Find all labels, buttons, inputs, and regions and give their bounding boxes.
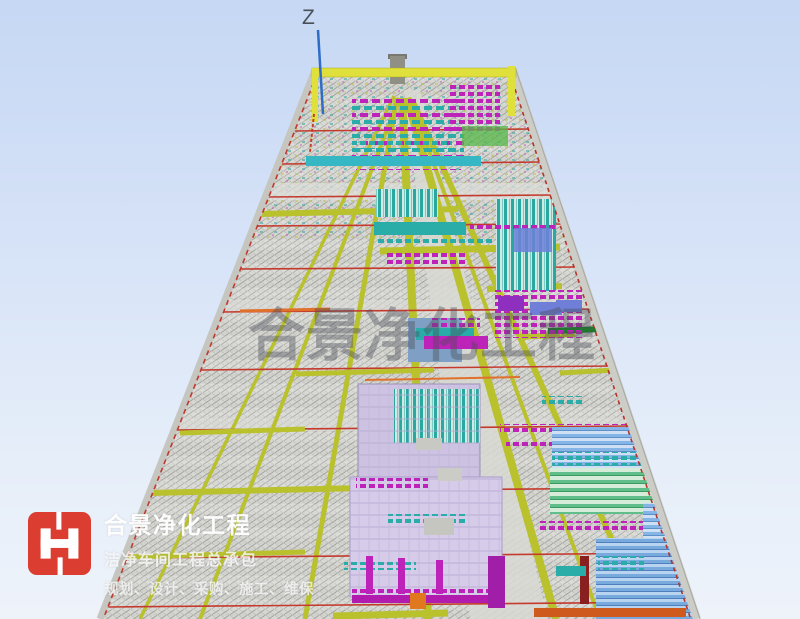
orange-floor-strip [534, 608, 686, 617]
magenta-pipe-row [352, 595, 502, 603]
cyan-main-duct [306, 156, 481, 166]
company-name: 合景净化工程 [104, 513, 314, 538]
hejing-h-monogram-icon [28, 511, 91, 576]
blue-duct-bank [596, 538, 718, 619]
z-axis-label: Z [302, 6, 315, 30]
company-services: 规划、设计、采购、施工、维保 [104, 578, 314, 599]
company-tagline: 洁净车间工程总承包 [104, 546, 314, 570]
company-logo: 合景净化工程 洁净车间工程总承包 规划、设计、采购、施工、维保 [28, 511, 314, 599]
light-blue-ducts [552, 427, 690, 475]
viewport-3d[interactable]: Z 合景净化工程 合景净化工程 洁净车间工程总承包 规划、设计、采购、施工、维保 [0, 0, 800, 619]
logo-text-block: 合景净化工程 洁净车间工程总承包 规划、设计、采购、施工、维保 [104, 511, 314, 599]
